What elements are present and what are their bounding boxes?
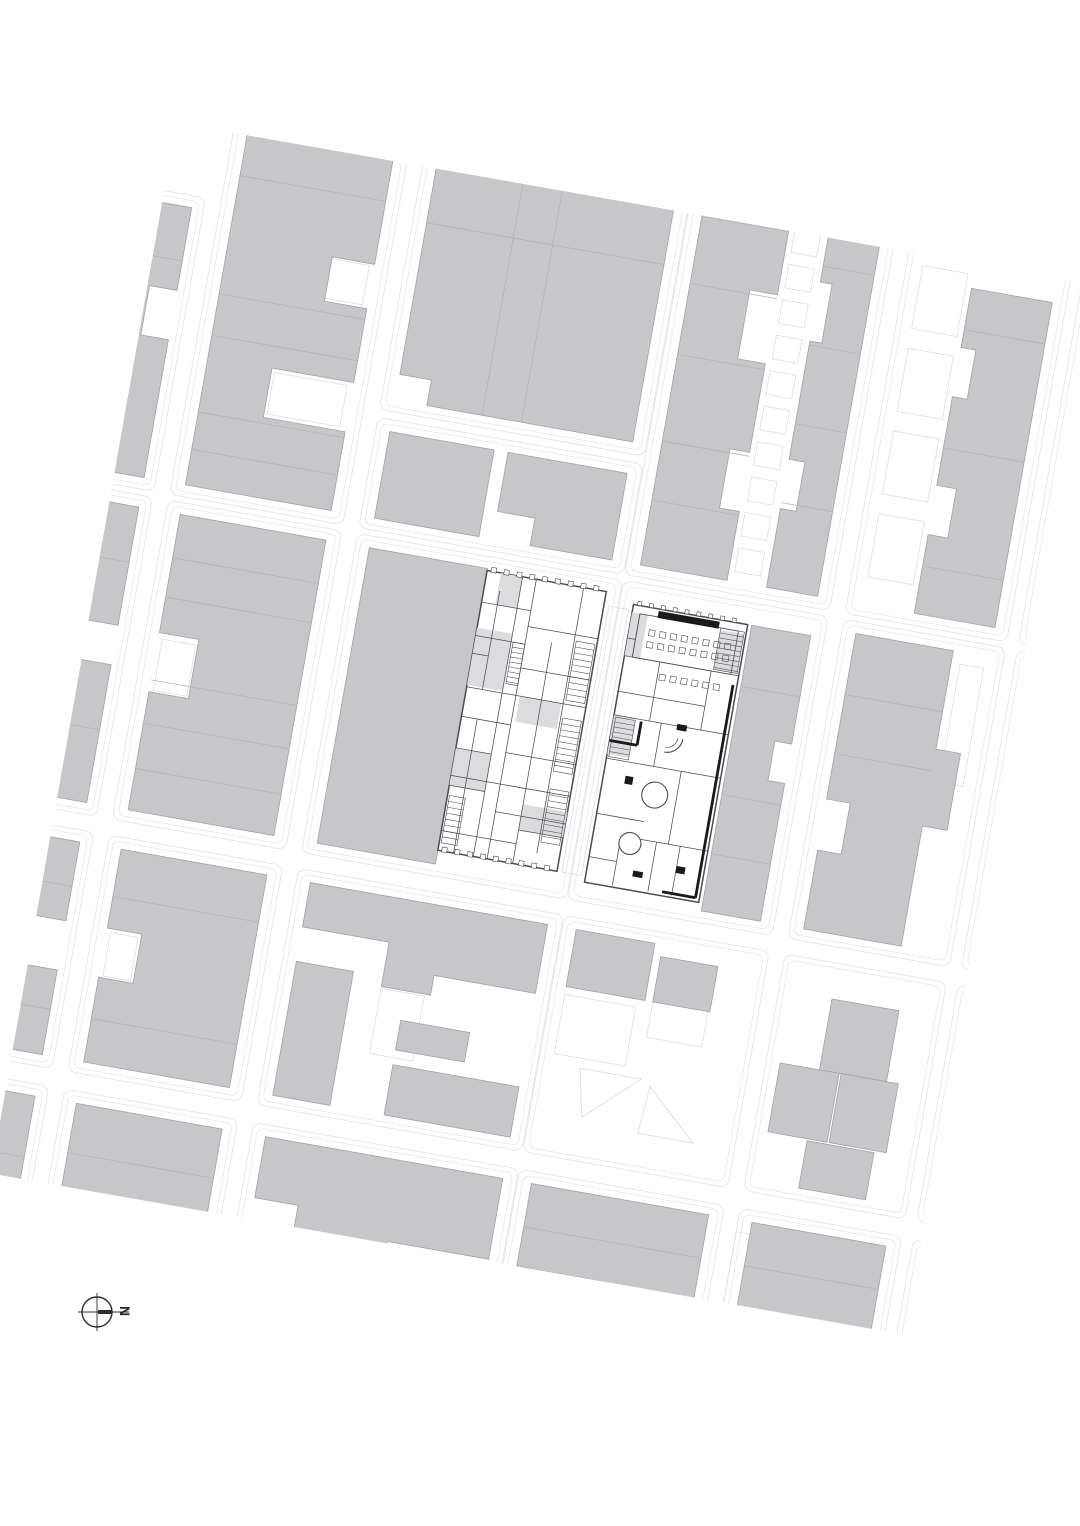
site-plan-drawing — [0, 0, 1080, 1526]
north-label: N — [117, 1303, 133, 1319]
page: N — [0, 0, 1080, 1526]
city-blocks — [0, 0, 1080, 1513]
